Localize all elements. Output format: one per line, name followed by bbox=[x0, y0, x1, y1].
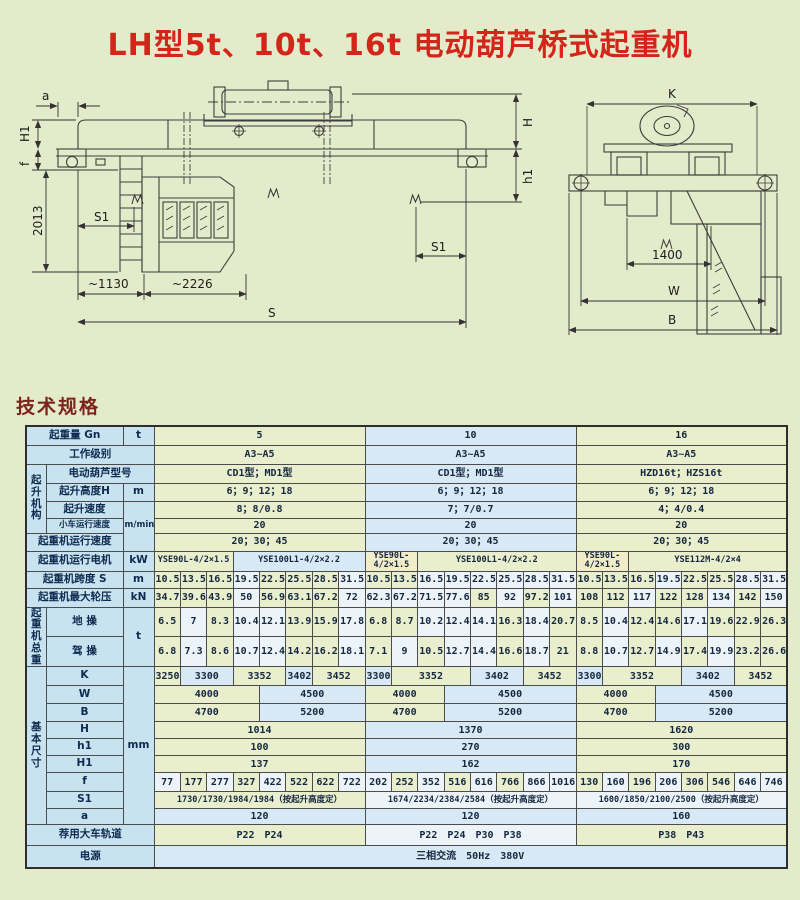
group-hoist-mechanism: 起升 机构 bbox=[26, 464, 46, 533]
catalog-page: { "page": { "title": "LH型5t、10t、16t 电动葫芦… bbox=[0, 0, 800, 900]
cell-dim-h-1: 1014 bbox=[154, 722, 365, 739]
spec-row-hoist-model: 起升 机构电动葫芦型号CD1型；MD1型CD1型；MD1型HZD16t；HZS1… bbox=[26, 464, 787, 483]
cell-span-14: 22.5 bbox=[471, 571, 497, 588]
cell-travel-motor-5: YSE100L1-4/2×2.2 bbox=[418, 551, 576, 571]
cell-weight-cab-19: 12.7 bbox=[629, 637, 655, 667]
cell-wheel-load-5: 50 bbox=[233, 588, 259, 607]
cell-weight-cab-1: 6.8 bbox=[154, 637, 180, 667]
cell-weight-cab-13: 14.4 bbox=[471, 637, 497, 667]
spec-row-wheel-load: 起重机最大轮压kN34.739.643.95056.963.167.27262.… bbox=[26, 588, 787, 607]
cell-dim-h1-1: 100 bbox=[154, 739, 365, 756]
cell-dim-k-10: 3402 bbox=[471, 667, 524, 686]
dim-label-1400: 1400 bbox=[652, 248, 683, 262]
cell-duty-class-0: 工作级别 bbox=[26, 445, 154, 464]
cell-dim-k-6: 3402 bbox=[286, 667, 312, 686]
cell-span-23: 25.5 bbox=[708, 571, 734, 588]
cell-dim-b-1: 4700 bbox=[154, 704, 260, 722]
cell-dim-k-11: 3452 bbox=[523, 667, 576, 686]
spec-row-lifting-speed: 起升速度m/min8；8/0.87；7/0.74；4/0.4 bbox=[26, 501, 787, 518]
cell-weight-ground-5: 8.3 bbox=[207, 607, 233, 637]
dim-label-a: a bbox=[42, 89, 49, 103]
cell-lifting-height-2: 6；9；12；18 bbox=[154, 483, 365, 501]
cell-rail-0: 荐用大车轨道 bbox=[26, 825, 154, 846]
cell-weight-cab-0: 驾 操 bbox=[46, 637, 123, 667]
cell-dim-f-22: 546 bbox=[708, 773, 734, 792]
cell-dim-f-18: 160 bbox=[602, 773, 628, 792]
cell-weight-ground-8: 13.9 bbox=[286, 607, 312, 637]
cell-hoist-model-4: HZD16t；HZS16t bbox=[576, 464, 787, 483]
dim-label-2013: 2013 bbox=[31, 205, 45, 236]
cell-dim-hh1-1: 137 bbox=[154, 756, 365, 773]
end-view-drawing: K 1400 W B bbox=[549, 74, 796, 366]
cell-weight-ground-16: 16.3 bbox=[497, 607, 523, 637]
cell-dim-s1-1: 1730/1730/1984/1984（按起升高度定） bbox=[154, 792, 365, 809]
cell-dim-k-4: 3300 bbox=[180, 667, 233, 686]
cell-weight-cab-15: 18.7 bbox=[523, 637, 549, 667]
dim-label-b: B bbox=[668, 313, 676, 327]
cell-wheel-load-3: 39.6 bbox=[180, 588, 206, 607]
cell-lifting-height-0: 起升高度H bbox=[46, 483, 123, 501]
cell-dim-a-2: 120 bbox=[365, 809, 576, 825]
cell-weight-cab-12: 12.7 bbox=[444, 637, 470, 667]
cell-dim-f-4: 327 bbox=[233, 773, 259, 792]
cell-dim-b-3: 4700 bbox=[365, 704, 444, 722]
cell-capacity-4: 16 bbox=[576, 426, 787, 445]
cell-hoist-model-1: 电动葫芦型号 bbox=[46, 464, 154, 483]
dim-label-s1-left: S1 bbox=[94, 210, 109, 224]
cell-span-8: 28.5 bbox=[312, 571, 338, 588]
cell-dim-f-3: 277 bbox=[207, 773, 233, 792]
cell-span-0: 起重机跨度 S bbox=[26, 571, 123, 588]
dim-label-h1-top: H1 bbox=[18, 125, 32, 142]
cell-trolley-speed-2: 20 bbox=[365, 518, 576, 533]
dim-label-w: W bbox=[668, 284, 680, 298]
cell-dim-w-5: 4000 bbox=[576, 686, 655, 704]
cell-weight-ground-26: 26.3 bbox=[761, 607, 787, 637]
girder-joint-centerlines bbox=[184, 112, 330, 184]
cell-wheel-load-1: kN bbox=[123, 588, 154, 607]
cell-weight-ground-25: 22.9 bbox=[734, 607, 760, 637]
cell-span-13: 19.5 bbox=[444, 571, 470, 588]
cell-weight-cab-18: 10.7 bbox=[602, 637, 628, 667]
page-title: LH型5t、10t、16t 电动葫芦桥式起重机 bbox=[0, 0, 800, 64]
cell-span-4: 16.5 bbox=[207, 571, 233, 588]
cell-wheel-load-24: 142 bbox=[734, 588, 760, 607]
cell-weight-ground-19: 8.5 bbox=[576, 607, 602, 637]
cell-weight-ground-13: 10.2 bbox=[418, 607, 444, 637]
cell-wheel-load-21: 122 bbox=[655, 588, 681, 607]
dim-label-h1-right: h1 bbox=[521, 169, 535, 184]
cell-span-12: 16.5 bbox=[418, 571, 444, 588]
spec-row-duty-class: 工作级别A3~A5A3~A5A3~A5 bbox=[26, 445, 787, 464]
cell-dim-f-1: 77 bbox=[154, 773, 180, 792]
cell-span-9: 31.5 bbox=[339, 571, 365, 588]
technical-drawings: a H1 f 2013 S1 ~1130 ~2226 S H h1 S1 bbox=[16, 74, 800, 366]
cell-dim-f-14: 766 bbox=[497, 773, 523, 792]
cell-dim-f-12: 516 bbox=[444, 773, 470, 792]
cell-weight-cab-5: 12.4 bbox=[260, 637, 286, 667]
cell-span-22: 22.5 bbox=[682, 571, 708, 588]
cell-dim-b-5: 4700 bbox=[576, 704, 655, 722]
cell-dim-k-5: 3352 bbox=[233, 667, 286, 686]
ladder bbox=[120, 156, 142, 272]
cell-dim-f-10: 252 bbox=[391, 773, 417, 792]
cell-dim-h-0: H bbox=[46, 722, 123, 739]
cell-weight-ground-6: 10.4 bbox=[233, 607, 259, 637]
cell-dim-k-7: 3452 bbox=[312, 667, 365, 686]
cell-dim-f-17: 130 bbox=[576, 773, 602, 792]
cell-span-2: 10.5 bbox=[154, 571, 180, 588]
cell-travel-motor-4: YSE90L-4/2×1.5 bbox=[365, 551, 418, 571]
cell-hoist-model-2: CD1型；MD1型 bbox=[154, 464, 365, 483]
cell-weight-cab-20: 14.9 bbox=[655, 637, 681, 667]
cell-span-6: 22.5 bbox=[260, 571, 286, 588]
cell-travel-motor-1: kW bbox=[123, 551, 154, 571]
cell-dim-h1-2: 270 bbox=[365, 739, 576, 756]
cell-dim-k-8: 3300 bbox=[365, 667, 391, 686]
cell-weight-cab-4: 10.7 bbox=[233, 637, 259, 667]
dimension-labels: a H1 f 2013 S1 ~1130 ~2226 S H h1 S1 bbox=[18, 89, 535, 320]
spec-row-dim-k: 基本 尺寸Kmm32503300335234023452330033523402… bbox=[26, 667, 787, 686]
cell-wheel-load-25: 150 bbox=[761, 588, 787, 607]
cell-wheel-load-7: 63.1 bbox=[286, 588, 312, 607]
cell-span-5: 19.5 bbox=[233, 571, 259, 588]
crane-outline bbox=[56, 81, 488, 272]
cell-dim-k-9: 3352 bbox=[391, 667, 470, 686]
cell-wheel-load-23: 134 bbox=[708, 588, 734, 607]
cell-rail-2: P22 P24 P30 P38 bbox=[365, 825, 576, 846]
cell-weight-cab-8: 18.1 bbox=[339, 637, 365, 667]
cell-weight-ground-21: 12.4 bbox=[629, 607, 655, 637]
cell-dim-w-2: 4500 bbox=[260, 686, 366, 704]
cell-weight-cab-21: 17.4 bbox=[682, 637, 708, 667]
cell-dim-a-1: 120 bbox=[154, 809, 365, 825]
cell-span-7: 25.5 bbox=[286, 571, 312, 588]
cell-dim-f-16: 1016 bbox=[550, 773, 576, 792]
cell-weight-cab-7: 16.2 bbox=[312, 637, 338, 667]
cell-power-1: 三相交流 50Hz 380V bbox=[154, 846, 787, 868]
cell-dim-hh1-0: H1 bbox=[46, 756, 123, 773]
cell-lifting-speed-3: 7；7/0.7 bbox=[365, 501, 576, 518]
group-total-weight: 起重 机 总重 bbox=[26, 607, 46, 667]
cell-span-11: 13.5 bbox=[391, 571, 417, 588]
cell-weight-ground-20: 10.4 bbox=[602, 607, 628, 637]
cell-rail-1: P22 P24 bbox=[154, 825, 365, 846]
cell-dim-s1-0: S1 bbox=[46, 792, 123, 809]
cell-dim-f-7: 622 bbox=[312, 773, 338, 792]
cell-wheel-load-12: 71.5 bbox=[418, 588, 444, 607]
cell-dim-f-23: 646 bbox=[734, 773, 760, 792]
cell-weight-cab-24: 26.6 bbox=[761, 637, 787, 667]
cell-weight-cab-23: 23.2 bbox=[734, 637, 760, 667]
cell-weight-ground-11: 6.8 bbox=[365, 607, 391, 637]
cell-wheel-load-2: 34.7 bbox=[154, 588, 180, 607]
dim-label-f: f bbox=[18, 161, 32, 166]
spec-row-lifting-height: 起升高度Hm6；9；12；186；9；12；186；9；12；18 bbox=[26, 483, 787, 501]
end-dimension-lines bbox=[569, 104, 777, 335]
cell-dim-k-1: K bbox=[46, 667, 123, 686]
cell-span-19: 13.5 bbox=[602, 571, 628, 588]
cell-trolley-speed-3: 20 bbox=[576, 518, 787, 533]
cell-dim-f-6: 522 bbox=[286, 773, 312, 792]
cell-dim-b-4: 5200 bbox=[444, 704, 576, 722]
spec-row-weight-ground: 起重 机 总重地 操t6.578.310.412.113.915.917.86.… bbox=[26, 607, 787, 637]
cell-lifting-height-1: m bbox=[123, 483, 154, 501]
spec-table: 起重量 Gnt51016工作级别A3~A5A3~A5A3~A5起升 机构电动葫芦… bbox=[25, 425, 788, 869]
cell-wheel-load-17: 101 bbox=[550, 588, 576, 607]
cell-crane-speed-0: 起重机运行速度 bbox=[26, 533, 123, 551]
cell-lifting-speed-1: m/min bbox=[123, 501, 154, 551]
cell-weight-ground-7: 12.1 bbox=[260, 607, 286, 637]
cell-dim-h1-3: 300 bbox=[576, 739, 787, 756]
cell-weight-cab-22: 19.9 bbox=[708, 637, 734, 667]
cell-weight-ground-2: t bbox=[123, 607, 154, 667]
cell-dim-a-3: 160 bbox=[576, 809, 787, 825]
cell-capacity-3: 10 bbox=[365, 426, 576, 445]
cell-span-1: m bbox=[123, 571, 154, 588]
spec-table-body: 起重量 Gnt51016工作级别A3~A5A3~A5A3~A5起升 机构电动葫芦… bbox=[26, 426, 787, 868]
dim-label-2226: ~2226 bbox=[172, 277, 213, 291]
cell-weight-cab-3: 8.6 bbox=[207, 637, 233, 667]
cell-wheel-load-11: 67.2 bbox=[391, 588, 417, 607]
cell-wheel-load-10: 62.3 bbox=[365, 588, 391, 607]
cell-span-21: 19.5 bbox=[655, 571, 681, 588]
cell-lifting-height-4: 6；9；12；18 bbox=[576, 483, 787, 501]
cell-dim-b-0: B bbox=[46, 704, 123, 722]
cell-span-16: 28.5 bbox=[523, 571, 549, 588]
cell-span-10: 10.5 bbox=[365, 571, 391, 588]
cell-dim-a-0: a bbox=[46, 809, 123, 825]
cell-wheel-load-8: 67.2 bbox=[312, 588, 338, 607]
cell-weight-ground-3: 6.5 bbox=[154, 607, 180, 637]
cell-dim-s1-2: 1674/2234/2384/2584（按起升高度定） bbox=[365, 792, 576, 809]
cell-dim-k-12: 3300 bbox=[576, 667, 602, 686]
cell-dim-s1-3: 1600/1850/2100/2500（按起升高度定） bbox=[576, 792, 787, 809]
cell-dim-k-15: 3452 bbox=[734, 667, 787, 686]
cell-trolley-speed-0: 小车运行速度 bbox=[46, 518, 123, 533]
cell-travel-motor-7: YSE112M-4/2×4 bbox=[629, 551, 787, 571]
cell-lifting-speed-4: 4；4/0.4 bbox=[576, 501, 787, 518]
cell-weight-cab-11: 10.5 bbox=[418, 637, 444, 667]
cell-weight-ground-1: 地 操 bbox=[46, 607, 123, 637]
cell-span-20: 16.5 bbox=[629, 571, 655, 588]
cell-wheel-load-20: 117 bbox=[629, 588, 655, 607]
cell-travel-motor-6: YSE90L-4/2×1.5 bbox=[576, 551, 629, 571]
front-elevation-drawing: a H1 f 2013 S1 ~1130 ~2226 S H h1 S1 bbox=[16, 74, 543, 366]
dim-label-s: S bbox=[268, 306, 276, 320]
cell-crane-speed-1: 20；30；45 bbox=[154, 533, 365, 551]
cell-wheel-load-14: 85 bbox=[471, 588, 497, 607]
cell-duty-class-2: A3~A5 bbox=[365, 445, 576, 464]
cell-weight-ground-17: 18.4 bbox=[523, 607, 549, 637]
cell-rail-3: P38 P43 bbox=[576, 825, 787, 846]
spec-row-span: 起重机跨度 Sm10.513.516.519.522.525.528.531.5… bbox=[26, 571, 787, 588]
cell-weight-ground-15: 14.1 bbox=[471, 607, 497, 637]
cell-power-0: 电源 bbox=[26, 846, 154, 868]
cell-dim-f-24: 746 bbox=[761, 773, 787, 792]
cell-dim-f-5: 422 bbox=[260, 773, 286, 792]
cell-dim-w-0: W bbox=[46, 686, 123, 704]
cell-span-3: 13.5 bbox=[180, 571, 206, 588]
dim-label-h-right: H bbox=[521, 118, 535, 127]
spec-row-travel-motor: 起重机运行电机kWYSE90L-4/2×1.5YSE100L1-4/2×2.2Y… bbox=[26, 551, 787, 571]
cell-dim-f-21: 306 bbox=[682, 773, 708, 792]
cell-dim-f-19: 196 bbox=[629, 773, 655, 792]
cell-dim-f-15: 866 bbox=[523, 773, 549, 792]
cell-capacity-2: 5 bbox=[154, 426, 365, 445]
driver-cab bbox=[142, 177, 234, 272]
cell-dim-w-1: 4000 bbox=[154, 686, 260, 704]
cell-dim-b-2: 5200 bbox=[260, 704, 366, 722]
cell-capacity-0: 起重量 Gn bbox=[26, 426, 123, 445]
cell-dim-k-2: mm bbox=[123, 667, 154, 825]
cell-dim-k-14: 3402 bbox=[682, 667, 735, 686]
cell-wheel-load-22: 128 bbox=[682, 588, 708, 607]
cell-lifting-speed-0: 起升速度 bbox=[46, 501, 123, 518]
cell-duty-class-3: A3~A5 bbox=[576, 445, 787, 464]
section-heading: 技术规格 bbox=[16, 392, 800, 419]
cell-wheel-load-6: 56.9 bbox=[260, 588, 286, 607]
cell-dim-b-6: 5200 bbox=[655, 704, 787, 722]
cell-hoist-model-3: CD1型；MD1型 bbox=[365, 464, 576, 483]
cell-dim-f-20: 206 bbox=[655, 773, 681, 792]
cell-lifting-speed-2: 8；8/0.8 bbox=[154, 501, 365, 518]
dim-label-k: K bbox=[668, 87, 677, 101]
cell-span-17: 31.5 bbox=[550, 571, 576, 588]
cell-travel-motor-2: YSE90L-4/2×1.5 bbox=[154, 551, 233, 571]
cell-wheel-load-9: 72 bbox=[339, 588, 365, 607]
cell-wheel-load-18: 108 bbox=[576, 588, 602, 607]
cell-weight-ground-12: 8.7 bbox=[391, 607, 417, 637]
cell-span-24: 28.5 bbox=[734, 571, 760, 588]
group-basic-dimensions: 基本 尺寸 bbox=[26, 667, 46, 825]
cell-weight-ground-23: 17.1 bbox=[682, 607, 708, 637]
cell-dim-f-11: 352 bbox=[418, 773, 444, 792]
cell-dim-hh1-3: 170 bbox=[576, 756, 787, 773]
end-view-outline bbox=[569, 105, 781, 334]
cell-travel-motor-0: 起重机运行电机 bbox=[26, 551, 123, 571]
cell-dim-f-9: 202 bbox=[365, 773, 391, 792]
cell-weight-cab-2: 7.3 bbox=[180, 637, 206, 667]
cell-weight-ground-18: 20.7 bbox=[550, 607, 576, 637]
cell-weight-ground-4: 7 bbox=[180, 607, 206, 637]
cell-crane-speed-3: 20；30；45 bbox=[576, 533, 787, 551]
cell-weight-cab-14: 16.6 bbox=[497, 637, 523, 667]
cell-weight-ground-22: 14.6 bbox=[655, 607, 681, 637]
cell-weight-ground-24: 19.6 bbox=[708, 607, 734, 637]
cell-span-15: 25.5 bbox=[497, 571, 523, 588]
cell-weight-cab-17: 8.8 bbox=[576, 637, 602, 667]
cell-dim-w-3: 4000 bbox=[365, 686, 444, 704]
cell-span-25: 31.5 bbox=[761, 571, 787, 588]
cell-wheel-load-19: 112 bbox=[602, 588, 628, 607]
cell-dim-f-8: 722 bbox=[339, 773, 365, 792]
cell-dim-f-13: 616 bbox=[471, 773, 497, 792]
cell-dim-w-6: 4500 bbox=[655, 686, 787, 704]
dim-label-1130: ~1130 bbox=[88, 277, 129, 291]
cell-wheel-load-4: 43.9 bbox=[207, 588, 233, 607]
cell-dim-f-0: f bbox=[46, 773, 123, 792]
spec-row-power: 电源三相交流 50Hz 380V bbox=[26, 846, 787, 868]
cell-dim-h-3: 1620 bbox=[576, 722, 787, 739]
cell-weight-cab-9: 7.1 bbox=[365, 637, 391, 667]
cell-trolley-speed-1: 20 bbox=[154, 518, 365, 533]
cell-wheel-load-16: 97.2 bbox=[523, 588, 549, 607]
spec-row-rail: 荐用大车轨道P22 P24P22 P24 P30 P38P38 P43 bbox=[26, 825, 787, 846]
cell-lifting-height-3: 6；9；12；18 bbox=[365, 483, 576, 501]
cell-weight-ground-14: 12.4 bbox=[444, 607, 470, 637]
cell-travel-motor-3: YSE100L1-4/2×2.2 bbox=[233, 551, 365, 571]
cell-dim-h-2: 1370 bbox=[365, 722, 576, 739]
cell-dim-hh1-2: 162 bbox=[365, 756, 576, 773]
spec-row-capacity: 起重量 Gnt51016 bbox=[26, 426, 787, 445]
cell-crane-speed-2: 20；30；45 bbox=[365, 533, 576, 551]
cell-weight-ground-10: 17.8 bbox=[339, 607, 365, 637]
cell-wheel-load-13: 77.6 bbox=[444, 588, 470, 607]
cell-dim-w-4: 4500 bbox=[444, 686, 576, 704]
cell-weight-ground-9: 15.9 bbox=[312, 607, 338, 637]
cell-span-18: 10.5 bbox=[576, 571, 602, 588]
cell-wheel-load-0: 起重机最大轮压 bbox=[26, 588, 123, 607]
cell-capacity-1: t bbox=[123, 426, 154, 445]
cell-weight-cab-6: 14.2 bbox=[286, 637, 312, 667]
dim-label-s1-right: S1 bbox=[431, 240, 446, 254]
cell-duty-class-1: A3~A5 bbox=[154, 445, 365, 464]
cell-dim-k-3: 3250 bbox=[154, 667, 180, 686]
cell-dim-k-13: 3352 bbox=[602, 667, 681, 686]
cell-weight-cab-16: 21 bbox=[550, 637, 576, 667]
cell-dim-h1-0: h1 bbox=[46, 739, 123, 756]
cell-weight-cab-10: 9 bbox=[391, 637, 417, 667]
cell-dim-f-2: 177 bbox=[180, 773, 206, 792]
cell-wheel-load-15: 92 bbox=[497, 588, 523, 607]
